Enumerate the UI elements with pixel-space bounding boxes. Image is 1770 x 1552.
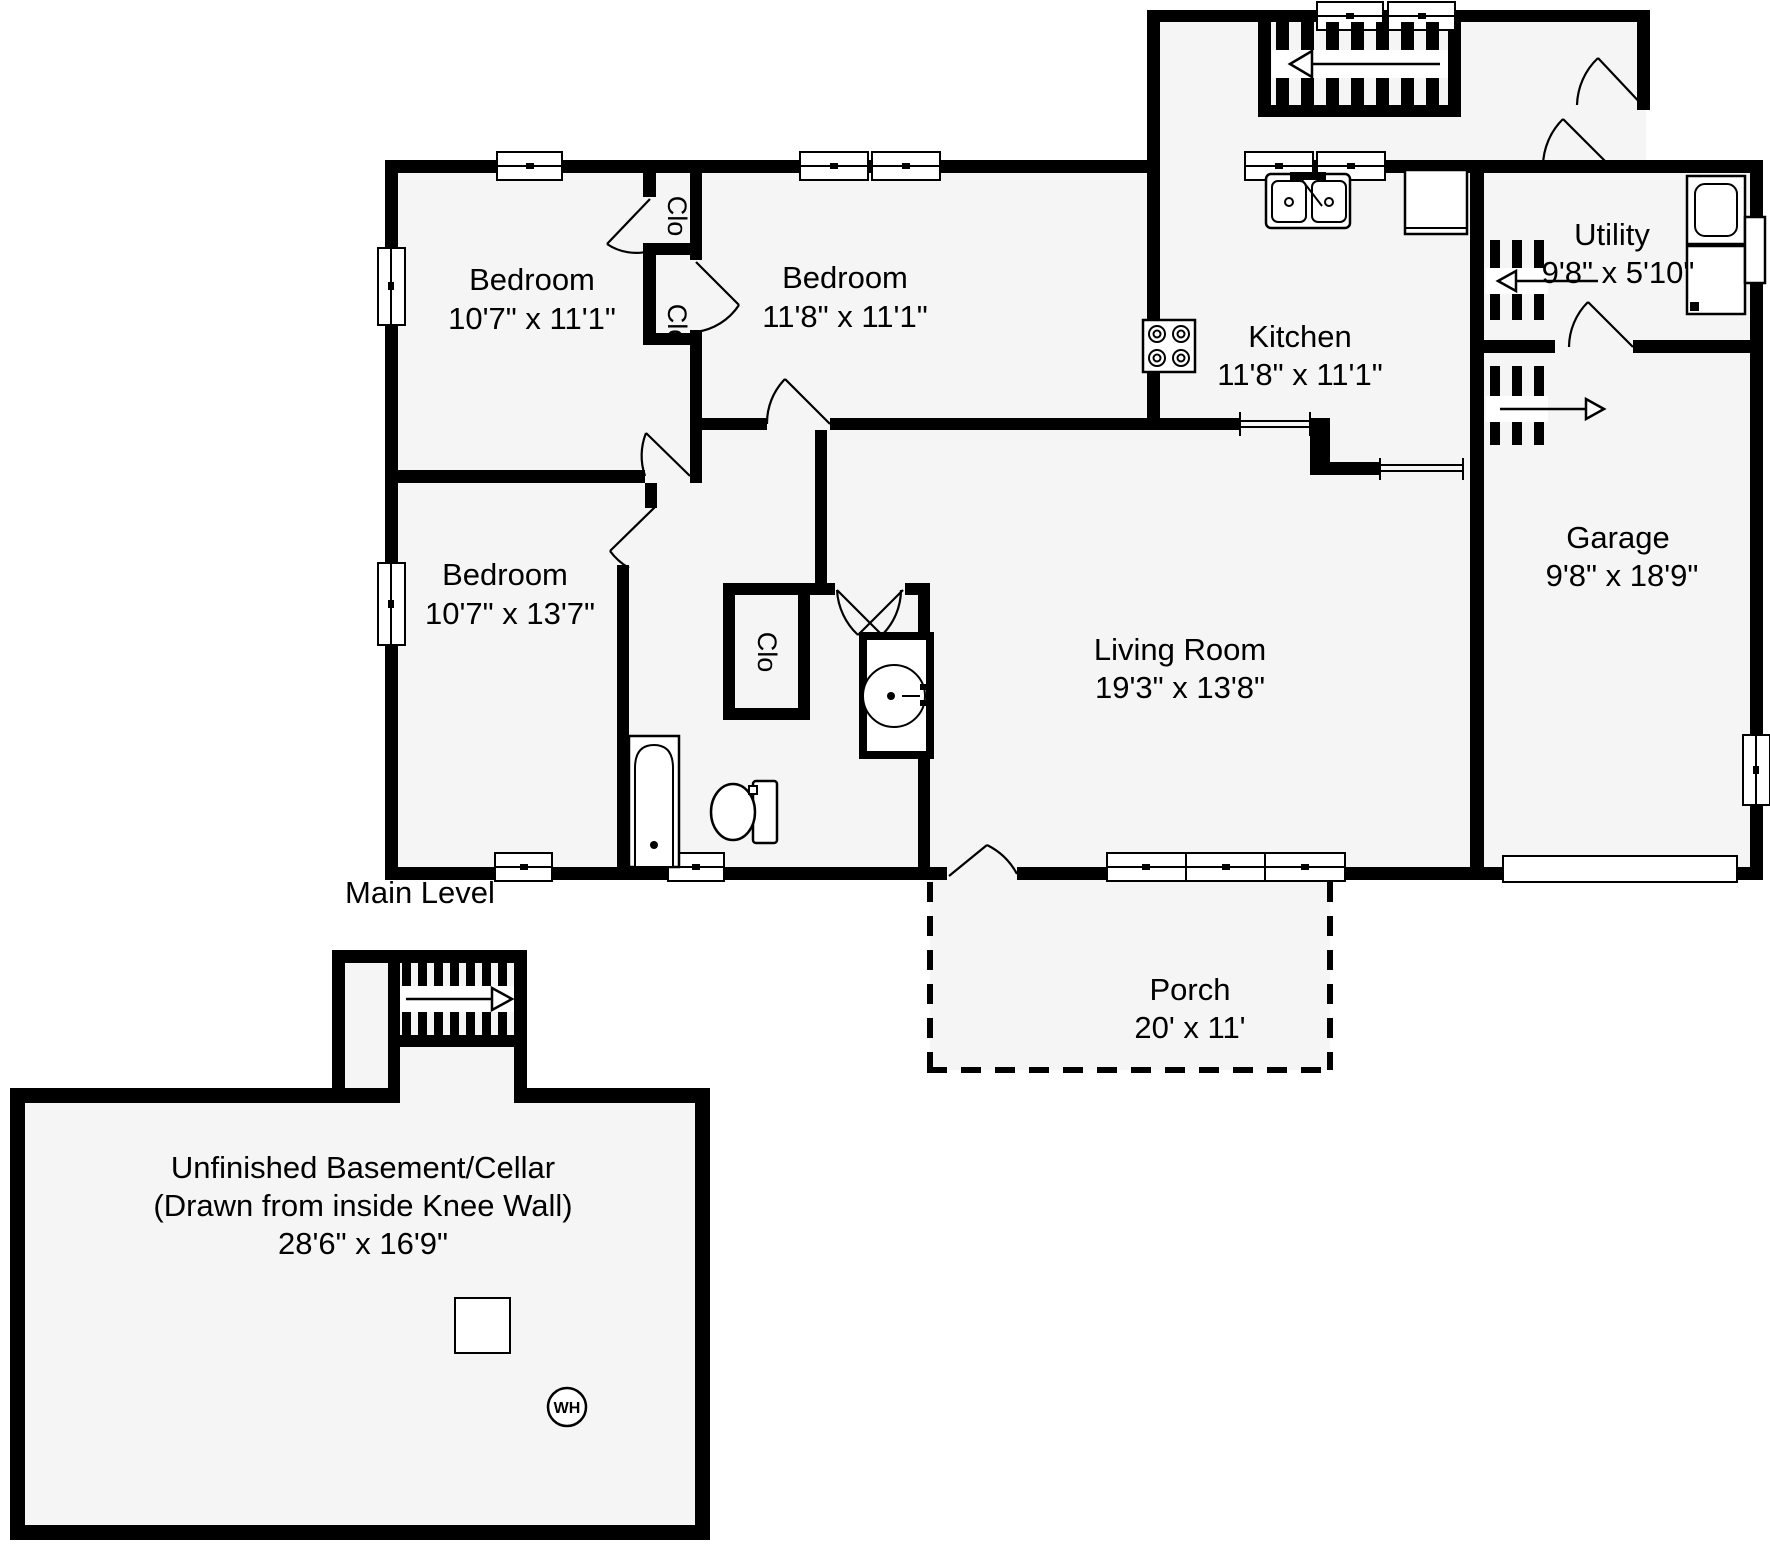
stove-icon — [1143, 320, 1195, 372]
window-icon — [378, 248, 405, 325]
window-icon — [800, 152, 868, 180]
bedroom3-name: Bedroom — [442, 557, 568, 592]
kitchen-name: Kitchen — [1248, 319, 1351, 354]
basement-dims: 28'6" x 16'9" — [278, 1226, 448, 1261]
window-icon — [495, 853, 552, 881]
bedroom2-dims: 11'8" x 11'1" — [762, 299, 927, 334]
utility-connection-box — [1745, 217, 1765, 283]
kitchen-dims: 11'8" x 11'1" — [1217, 357, 1382, 392]
water-heater-icon: WH — [548, 1388, 586, 1426]
utility-dims: 9'8" x 5'10" — [1542, 255, 1695, 290]
garage-dims: 9'8" x 18'9" — [1546, 558, 1699, 593]
porch-floor — [930, 880, 1330, 1070]
window-icon — [1107, 853, 1345, 881]
garage-name: Garage — [1566, 520, 1669, 555]
main-level-caption: Main Level — [345, 875, 495, 910]
window-icon — [872, 152, 940, 180]
living-room-name: Living Room — [1094, 632, 1266, 667]
utility-name: Utility — [1574, 217, 1650, 252]
basement-note: (Drawn from inside Knee Wall) — [153, 1188, 572, 1223]
bedroom1-name: Bedroom — [469, 262, 595, 297]
washer-icon — [1687, 176, 1745, 244]
closet1-label: Clo — [662, 196, 692, 237]
bedroom1-dims: 10'7" x 11'1" — [448, 301, 616, 336]
bedroom3-dims: 10'7" x 13'7" — [425, 596, 595, 631]
closet2-label: Clo — [662, 304, 692, 345]
kitchen-sink-icon — [1266, 172, 1350, 228]
water-heater-label: WH — [554, 1400, 581, 1417]
toilet-icon — [711, 781, 777, 843]
stair-hall-floor — [1152, 12, 1646, 170]
bedroom2-name: Bedroom — [782, 260, 908, 295]
basement-stair-floor — [337, 955, 522, 1103]
floor-plan-svg: WH Bedroom 10'7" x 11'1" Bedroom 11'8" x… — [0, 0, 1770, 1552]
porch-name: Porch — [1150, 972, 1231, 1007]
support-post-icon — [455, 1298, 510, 1353]
garage-door-icon — [1503, 856, 1737, 882]
porch-dims: 20' x 11' — [1134, 1010, 1245, 1045]
bathtub-icon — [629, 736, 679, 867]
window-icon — [497, 152, 562, 180]
floor-plan-page: WH Bedroom 10'7" x 11'1" Bedroom 11'8" x… — [0, 0, 1770, 1552]
closet3-label: Clo — [752, 632, 782, 673]
window-icon — [1388, 2, 1455, 30]
window-icon — [378, 563, 405, 645]
basement-name: Unfinished Basement/Cellar — [171, 1150, 555, 1185]
window-icon — [1743, 735, 1770, 805]
living-room-dims: 19'3" x 13'8" — [1095, 670, 1265, 705]
refrigerator-icon — [1405, 170, 1467, 234]
bathroom-vanity-icon — [863, 636, 932, 755]
dryer-icon — [1687, 246, 1745, 314]
